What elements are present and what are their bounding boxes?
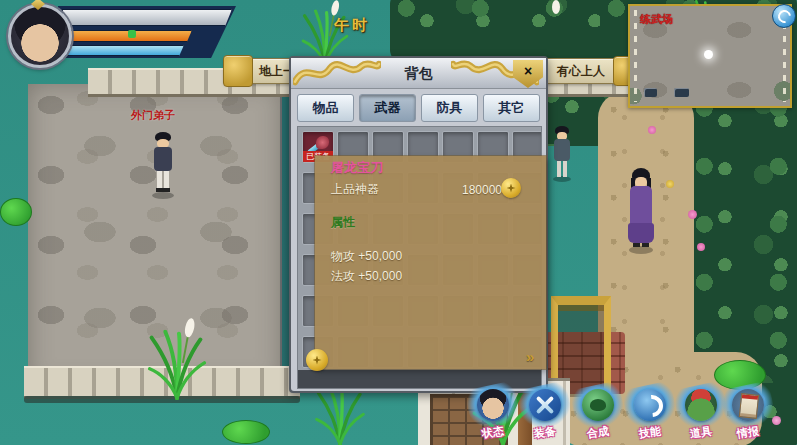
grass-bottom-center bbox=[312, 386, 368, 445]
minimap-marker-2 bbox=[674, 88, 689, 97]
stat-magic-attack: 法攻 +50,000 bbox=[331, 268, 402, 285]
stat-physical-attack: 物攻 +50,000 bbox=[331, 248, 402, 265]
flower-pink-3 bbox=[648, 126, 656, 134]
tab-armor[interactable]: 防具 bbox=[421, 94, 478, 122]
tab-weapons[interactable]: 武器 bbox=[359, 94, 416, 122]
npc-outer-disciple[interactable] bbox=[150, 132, 176, 200]
dialog-title: 背包 bbox=[405, 65, 433, 81]
minimap-player-dot bbox=[704, 50, 713, 59]
announcement-text-right: 有心上人 bbox=[557, 59, 605, 83]
exp-bar bbox=[62, 9, 232, 26]
dialog-header: 背包 bbox=[291, 58, 546, 89]
npc-near-dialog[interactable] bbox=[551, 126, 573, 182]
item-name: 屠龙宝刀 bbox=[331, 159, 383, 177]
lily-pad-left bbox=[0, 198, 32, 226]
action-button-skills[interactable]: 技能 bbox=[625, 385, 675, 445]
flower-yellow bbox=[666, 180, 674, 188]
attributes-header: 属性 bbox=[331, 214, 355, 231]
price-coin-icon bbox=[501, 178, 521, 198]
synthesis-creature-icon bbox=[582, 389, 614, 421]
minimap-map-name: 练武场 bbox=[640, 12, 673, 27]
minimap-marker-1 bbox=[644, 88, 657, 97]
crossed-swords-icon bbox=[529, 389, 561, 421]
action-button-intel[interactable]: 情报 bbox=[723, 385, 773, 445]
cattail-tip bbox=[552, 0, 560, 14]
action-button-equipment[interactable]: 装备 bbox=[520, 385, 570, 445]
npc-name-label: 外门弟子 bbox=[131, 108, 175, 123]
dragon-ornament-left bbox=[293, 56, 381, 90]
player-avatar[interactable] bbox=[8, 4, 72, 68]
time-of-day: 午时 bbox=[334, 16, 370, 35]
mp-bar bbox=[64, 45, 184, 56]
item-price: 180000 bbox=[462, 183, 502, 197]
action-button-items[interactable]: 道具 bbox=[676, 385, 726, 445]
item-grade: 上品神器 bbox=[331, 181, 379, 198]
minimap-toggle-button[interactable] bbox=[772, 4, 796, 28]
flower-pink-1 bbox=[688, 210, 697, 219]
grass-left-bottom bbox=[140, 318, 214, 400]
announcement-horn-icon bbox=[223, 55, 253, 87]
tab-items[interactable]: 物品 bbox=[297, 94, 354, 122]
game-viewport: 外门弟子 bbox=[0, 0, 797, 445]
action-button-status[interactable]: 状态 bbox=[468, 385, 518, 445]
action-button-synthesis[interactable]: 合成 bbox=[573, 385, 623, 445]
status-icon bbox=[477, 389, 509, 421]
item-tooltip: 屠龙宝刀 上品神器 180000 属性 物攻 +50,000 法攻 +50,00… bbox=[315, 156, 546, 369]
player-hud bbox=[0, 0, 250, 80]
scroll-icon bbox=[732, 389, 764, 421]
backpack-dialog: 背包 × 物品 武器 防具 其它 已装备 » 屠龙宝刀 上品神器 bbox=[289, 56, 548, 393]
flower-pink-2 bbox=[697, 243, 705, 251]
buff-dot bbox=[128, 30, 136, 38]
tab-bar: 物品 武器 防具 其它 bbox=[297, 94, 540, 122]
npc-purple-robe[interactable] bbox=[626, 168, 656, 254]
scroll-more-arrow[interactable]: » bbox=[526, 348, 534, 365]
currency-coin-icon bbox=[306, 349, 328, 371]
skill-orb-icon bbox=[634, 389, 666, 421]
minimap[interactable]: 练武场 bbox=[628, 4, 792, 108]
minimap-edge-left bbox=[634, 10, 637, 102]
tab-other[interactable]: 其它 bbox=[483, 94, 540, 122]
gourd-icon bbox=[685, 389, 717, 421]
lily-pad-bottom bbox=[222, 420, 270, 444]
dialog-frame: 背包 × 物品 武器 防具 其它 已装备 » 屠龙宝刀 上品神器 bbox=[291, 58, 546, 391]
